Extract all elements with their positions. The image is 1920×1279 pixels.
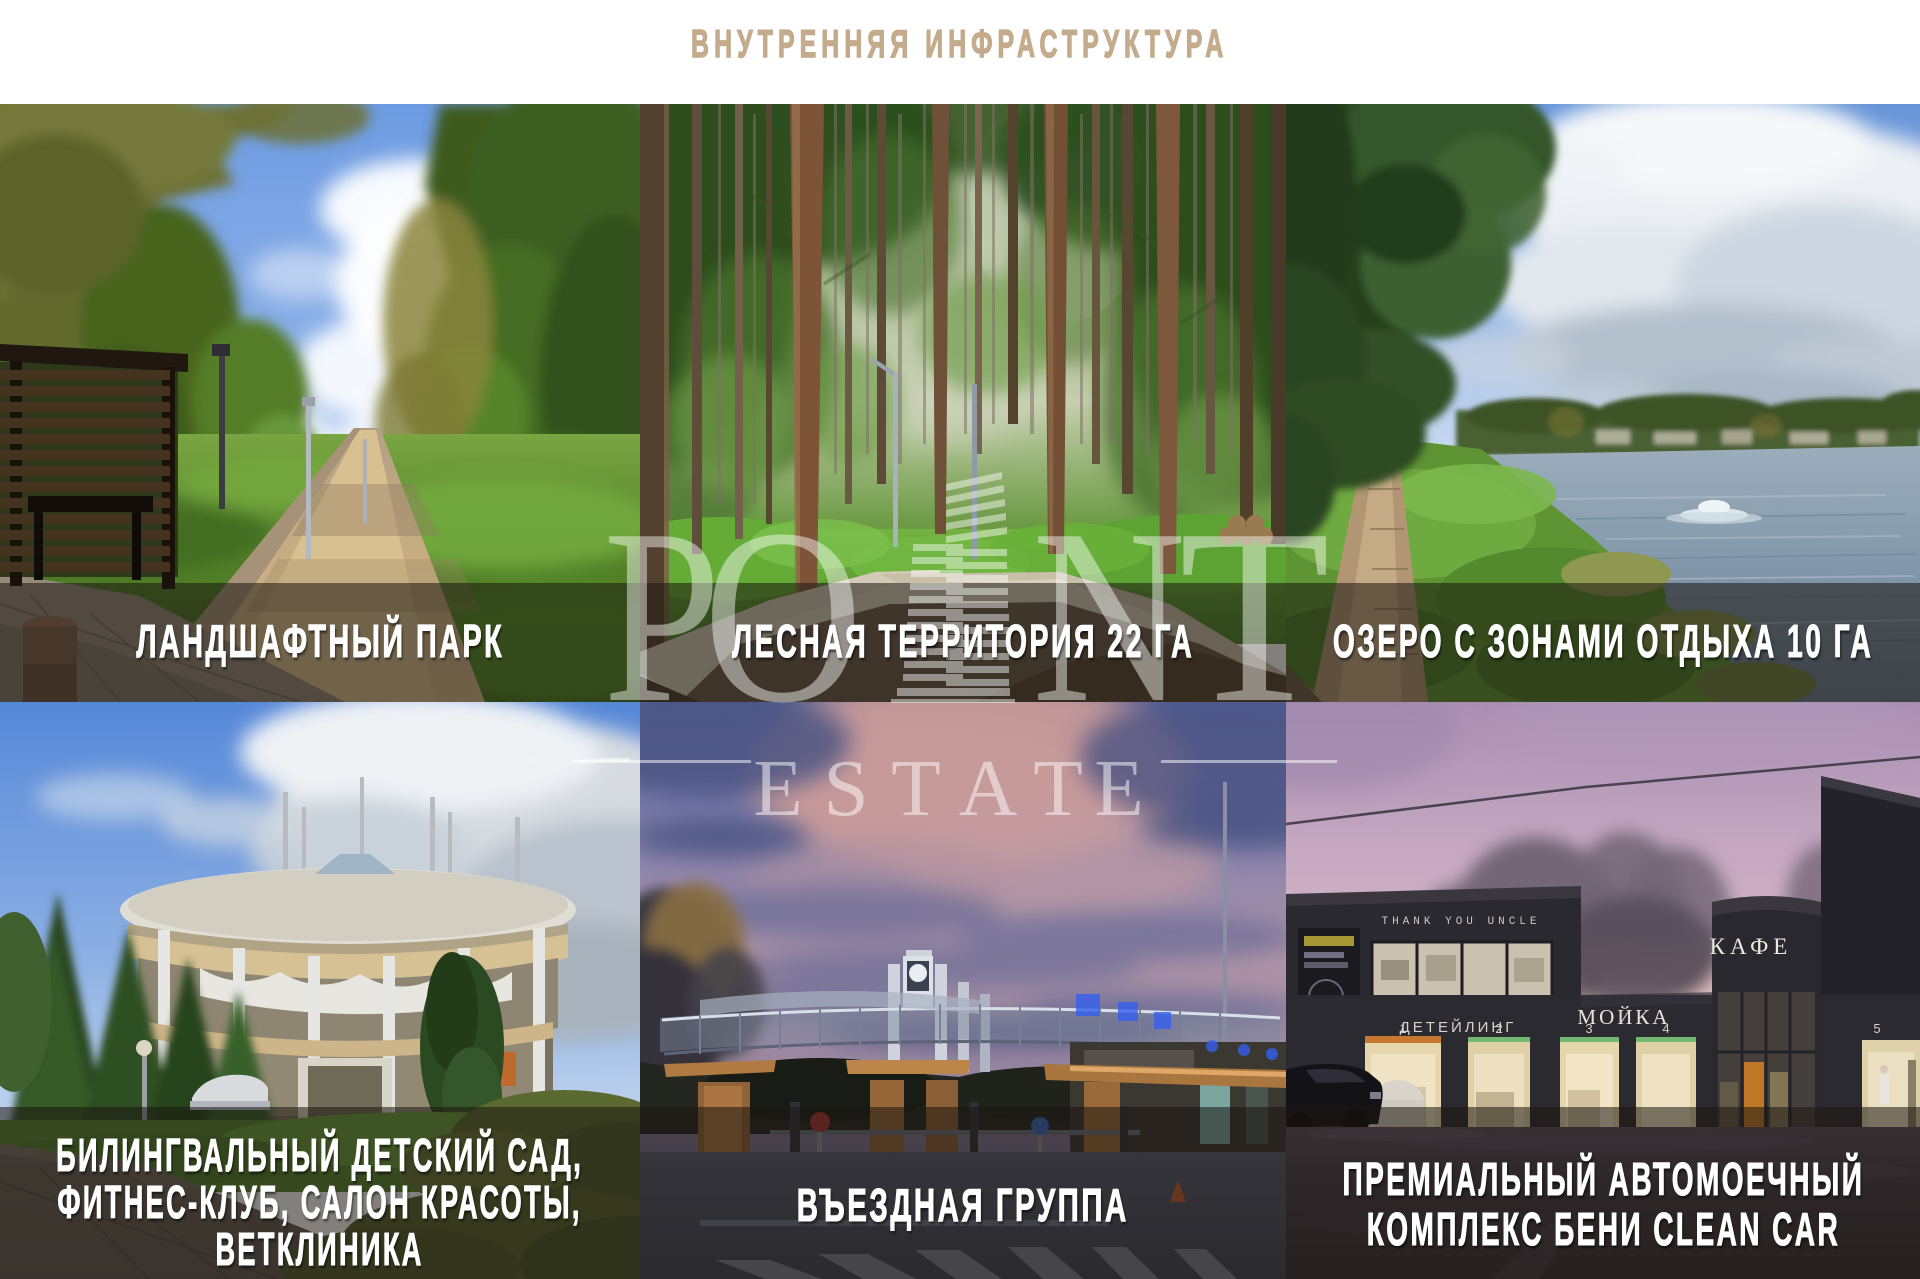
svg-text:S: S [823,743,868,833]
svg-text:T: T [1179,478,1330,755]
svg-text:T: T [1033,743,1082,833]
svg-text:A: A [959,743,1018,833]
svg-text:T: T [891,743,940,833]
svg-text:E: E [1094,743,1143,833]
svg-text:E: E [753,743,802,833]
